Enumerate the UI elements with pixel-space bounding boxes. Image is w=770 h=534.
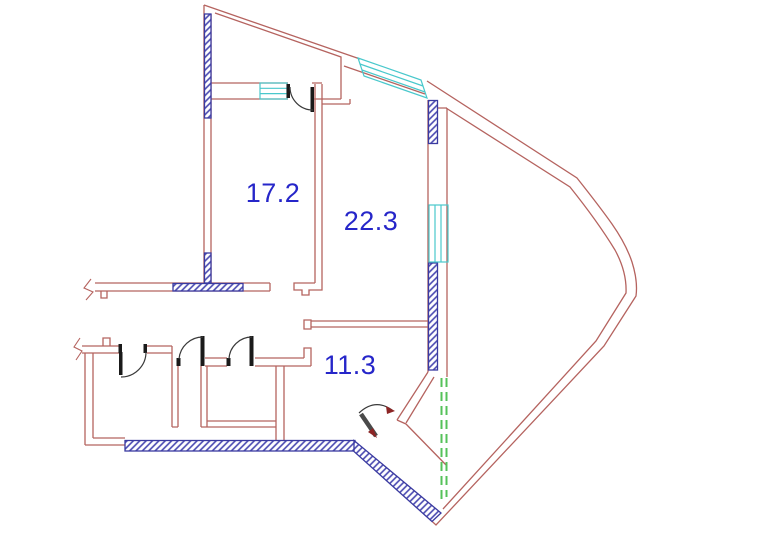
middle-room-walls xyxy=(201,366,276,427)
window-bay-horizontal xyxy=(260,83,287,99)
hatched-wall-corridor xyxy=(173,284,243,292)
hallway-top-wall-cap xyxy=(304,320,311,329)
middle-room-right-wall xyxy=(276,366,284,440)
door-bay-leaf xyxy=(311,87,315,112)
hatched-wall-west-upper xyxy=(205,14,212,118)
door-mid2-leaf xyxy=(250,336,254,360)
door-mid2-jamb-left xyxy=(227,358,231,366)
entrance-swing-arrows xyxy=(368,406,395,438)
door-left-room-arc xyxy=(121,352,146,377)
door-mid1-leaf xyxy=(201,336,205,360)
small-rooms-top-wall xyxy=(205,358,311,366)
hatched-wall-east-lower xyxy=(429,263,438,370)
small-rooms-top-wall-end-tab xyxy=(304,348,311,366)
doors xyxy=(119,84,396,438)
entrance-diagonal-wall xyxy=(397,372,447,466)
divider-wall-foot xyxy=(294,283,322,295)
door-mid1-arc xyxy=(179,337,203,359)
door-left-room-jamb-left xyxy=(119,344,123,353)
floor-plan-canvas: 17.2 22.3 11.3 xyxy=(0,0,770,534)
facade-inner-line xyxy=(443,108,626,509)
corridor-lower-wall xyxy=(82,346,172,353)
door-bay-jamb xyxy=(287,84,291,98)
divider-wall-17-22 xyxy=(315,84,322,283)
room-area-label-a: 17.2 xyxy=(246,178,301,208)
door-mid1-jamb-left xyxy=(177,358,181,366)
hatched-walls xyxy=(125,14,441,522)
room-area-label-b: 22.3 xyxy=(344,206,399,236)
balcony-glazing xyxy=(442,378,447,504)
door-bay-arc xyxy=(290,87,313,110)
wall-break-symbol-lower xyxy=(74,338,82,360)
entrance-arrow-icon xyxy=(386,406,395,414)
hatched-wall-west-lower xyxy=(205,253,212,283)
door-jambs-and-leaves xyxy=(119,84,315,375)
door-left-room-jamb-right xyxy=(144,344,148,353)
bay-roof-outer-line xyxy=(204,5,360,59)
facade-outer-line xyxy=(356,81,637,525)
floor-plan-drawing: 17.2 22.3 11.3 xyxy=(0,0,770,534)
slant-wall-inner-line xyxy=(344,66,425,94)
room2-top-wall-step xyxy=(322,99,350,104)
window-slanted-band xyxy=(358,58,427,98)
window-east-vertical xyxy=(429,205,448,262)
corridor-upper-wall-tab xyxy=(101,291,107,298)
corridor-lower-wall-tab xyxy=(103,338,110,346)
hatched-wall-entrance-diagonal xyxy=(354,441,441,522)
wall-break-symbol-upper xyxy=(84,279,93,300)
room-area-label-c: 11.3 xyxy=(324,350,377,380)
door-mid2-arc xyxy=(229,337,252,359)
hallway-top-wall xyxy=(311,321,428,327)
door-left-room-leaf xyxy=(119,352,123,375)
hatched-wall-east-upper xyxy=(429,101,438,144)
hatched-wall-south xyxy=(125,441,355,452)
